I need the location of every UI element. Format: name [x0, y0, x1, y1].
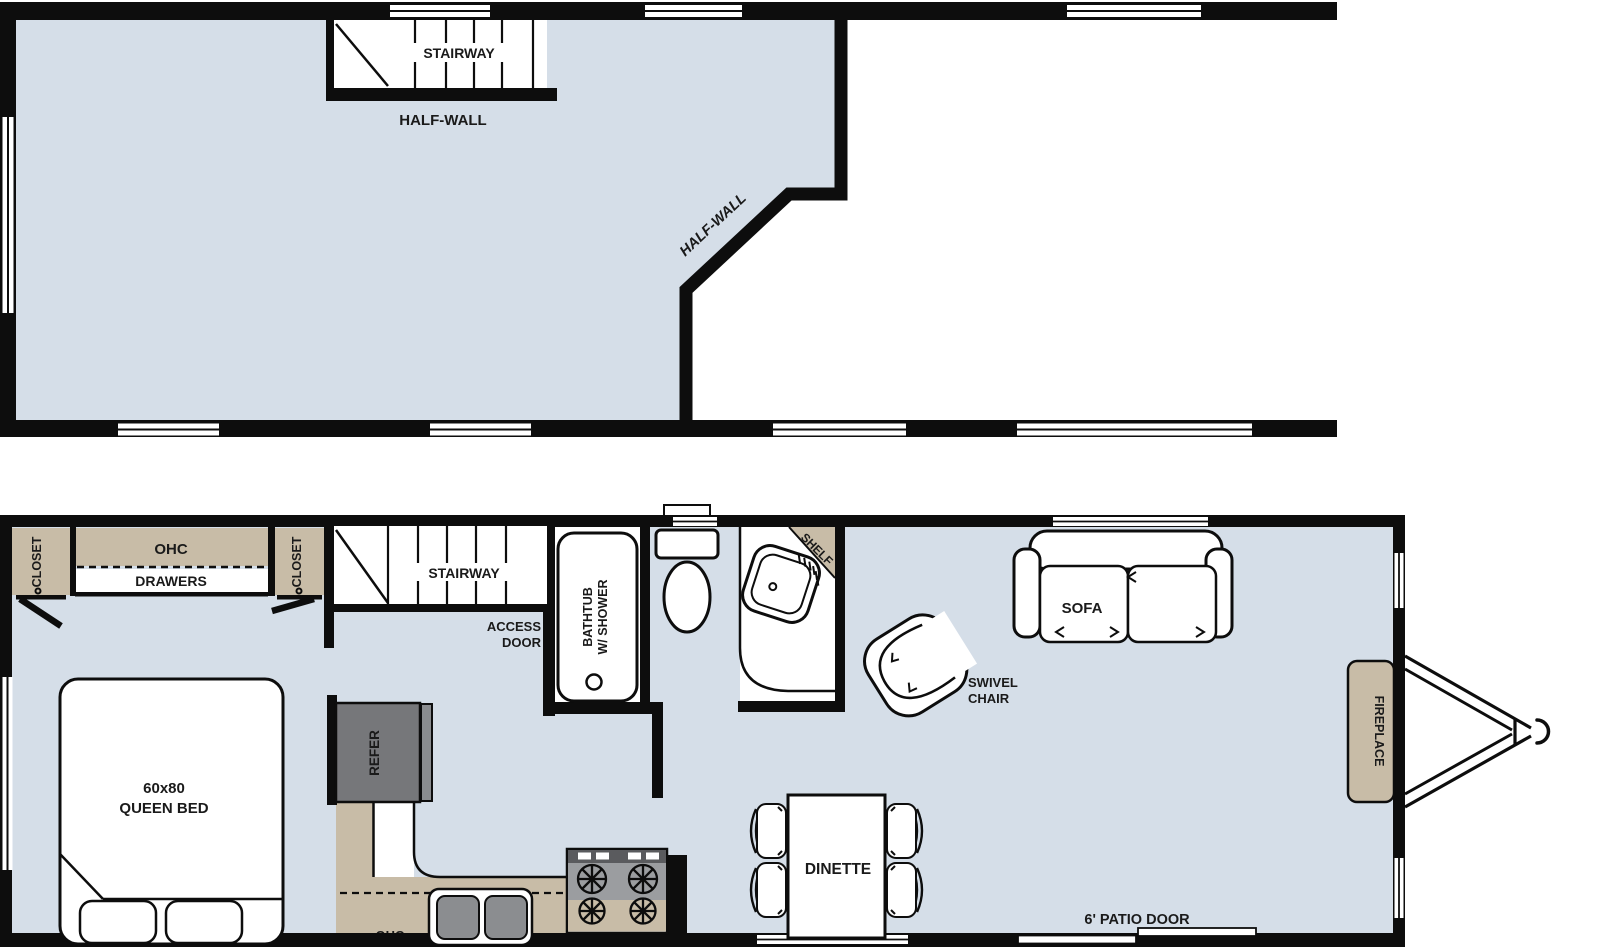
refer-label: REFER: [367, 730, 382, 776]
pillow: [80, 901, 156, 943]
tub-toilet-wall: [640, 526, 650, 706]
refrigerator: REFER: [336, 703, 432, 802]
drawers-label: DRAWERS: [135, 573, 207, 589]
swivel-chair-label: CHAIR: [968, 691, 1010, 706]
bathtub-label: BATHTUB: [581, 587, 595, 646]
dinette-chair: [887, 804, 922, 858]
bath-wall-right: [835, 526, 845, 712]
sofa: SOFA: [1014, 531, 1232, 642]
access-door-label: DOOR: [502, 635, 542, 650]
loft-stairway: STAIRWAY: [326, 20, 557, 101]
stair-bottom-wall: [327, 604, 549, 612]
hitch-coupler: [1537, 720, 1549, 743]
main-stairway-label: STAIRWAY: [428, 565, 500, 581]
swivel-chair-label: SWIVEL: [968, 675, 1018, 690]
dinette-label: DINETTE: [805, 861, 871, 878]
main-floor-plan: CLOSET CLOSET OHC DRAWERS OHC SHELF: [0, 505, 1549, 947]
kitchen-sink: [429, 889, 532, 945]
fireplace-label: FIREPLACE: [1372, 696, 1386, 767]
pillow: [166, 901, 242, 943]
floorplan-drawing: STAIRWAY HALF-WALL HALF-WALL CLOSET CL: [0, 0, 1600, 948]
queen-bed-label: 60x80: [143, 780, 185, 797]
access-door-label: ACCESS: [487, 619, 542, 634]
bathtub-label: W/ SHOWER: [596, 580, 610, 655]
queen-bed: 60x80 QUEEN BED: [60, 679, 283, 944]
closet-left-label: CLOSET: [30, 536, 44, 587]
dinette-chair: [751, 804, 786, 858]
range-stove: [567, 849, 667, 933]
bathtub: BATHTUB W/ SHOWER: [558, 533, 637, 701]
closet-right-label: CLOSET: [290, 536, 304, 587]
sofa-label: SOFA: [1062, 600, 1103, 617]
floorplan-page: STAIRWAY HALF-WALL HALF-WALL CLOSET CL: [0, 0, 1600, 948]
queen-bed-label: QUEEN BED: [119, 800, 208, 817]
dinette: DINETTE: [751, 795, 922, 938]
loft-halfwall-label: HALF-WALL: [399, 112, 486, 129]
dinette-chair: [887, 863, 922, 917]
loft-window: [3, 117, 14, 313]
hall-wall: [652, 714, 663, 798]
loft-stairway-label: STAIRWAY: [423, 45, 495, 61]
dinette-chair: [751, 863, 786, 917]
trailer-hitch: [1405, 652, 1549, 811]
ohc-bedroom-label: OHC: [154, 541, 188, 558]
upper-floor-plan: STAIRWAY HALF-WALL HALF-WALL: [0, 2, 1337, 437]
fireplace: FIREPLACE: [1348, 661, 1394, 802]
patio-door-label: 6' PATIO DOOR: [1084, 912, 1190, 928]
